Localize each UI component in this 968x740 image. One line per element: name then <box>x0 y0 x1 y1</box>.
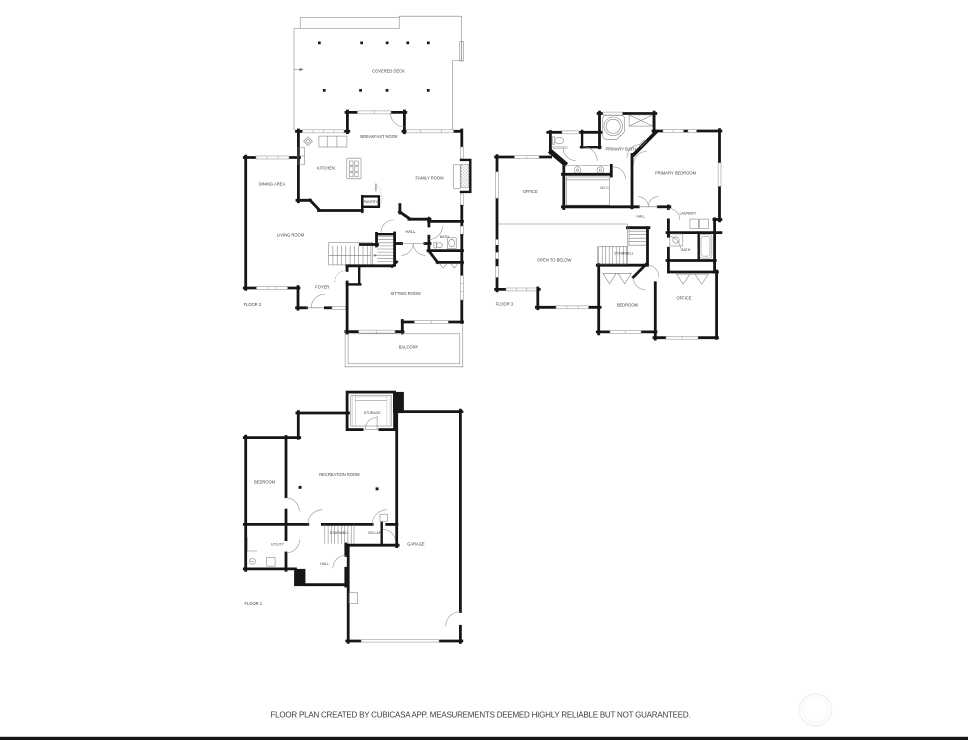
svg-text:OPEN TO BELOW: OPEN TO BELOW <box>537 258 571 263</box>
svg-text:CELLAR: CELLAR <box>368 531 382 535</box>
svg-text:PANTRY: PANTRY <box>364 200 379 204</box>
svg-text:BATH: BATH <box>681 248 691 252</box>
svg-text:PRIMARY BEDROOM: PRIMARY BEDROOM <box>655 171 696 176</box>
svg-text:STAIRWELL: STAIRWELL <box>614 252 634 256</box>
svg-text:BEDROOM: BEDROOM <box>617 303 639 308</box>
svg-text:SITTING ROOM: SITTING ROOM <box>390 291 421 296</box>
svg-text:BEDROOM: BEDROOM <box>254 479 276 484</box>
svg-text:UTILITY: UTILITY <box>271 543 285 547</box>
svg-text:FLOOR 2: FLOOR 2 <box>244 302 262 307</box>
svg-text:STORAGE: STORAGE <box>364 411 382 415</box>
svg-text:STAIRWELL: STAIRWELL <box>330 531 350 535</box>
svg-text:FAMILY ROOM: FAMILY ROOM <box>415 175 444 180</box>
svg-text:FLOOR PLAN CREATED BY CUBICASA: FLOOR PLAN CREATED BY CUBICASA APP. MEAS… <box>271 710 691 719</box>
svg-text:FOYER: FOYER <box>315 285 329 290</box>
svg-text:FLOOR 1: FLOOR 1 <box>245 601 263 606</box>
svg-text:BREAKFAST NOOK: BREAKFAST NOOK <box>360 134 398 139</box>
svg-text:BATH: BATH <box>440 235 450 239</box>
svg-text:BALCONY: BALCONY <box>399 345 419 350</box>
svg-text:DINING AREA: DINING AREA <box>259 181 286 186</box>
svg-text:OFFICE: OFFICE <box>676 295 691 300</box>
svg-text:OFFICE: OFFICE <box>523 189 538 194</box>
svg-text:KITCHEN: KITCHEN <box>317 166 335 171</box>
svg-text:FLOOR 3: FLOOR 3 <box>496 302 514 307</box>
svg-text:HALL: HALL <box>637 214 646 218</box>
svg-text:LAUNDRY: LAUNDRY <box>680 212 697 216</box>
svg-text:GARAGE: GARAGE <box>407 542 425 547</box>
svg-text:PRIMARY BATH: PRIMARY BATH <box>605 147 635 152</box>
svg-text:COVERED DECK: COVERED DECK <box>372 69 405 74</box>
svg-text:HALL: HALL <box>320 562 329 566</box>
svg-text:RECREATION ROOM: RECREATION ROOM <box>319 472 360 477</box>
svg-text:LIVING ROOM: LIVING ROOM <box>277 233 305 238</box>
svg-text:HALL: HALL <box>405 229 416 234</box>
svg-text:W.I.C.: W.I.C. <box>600 186 610 190</box>
